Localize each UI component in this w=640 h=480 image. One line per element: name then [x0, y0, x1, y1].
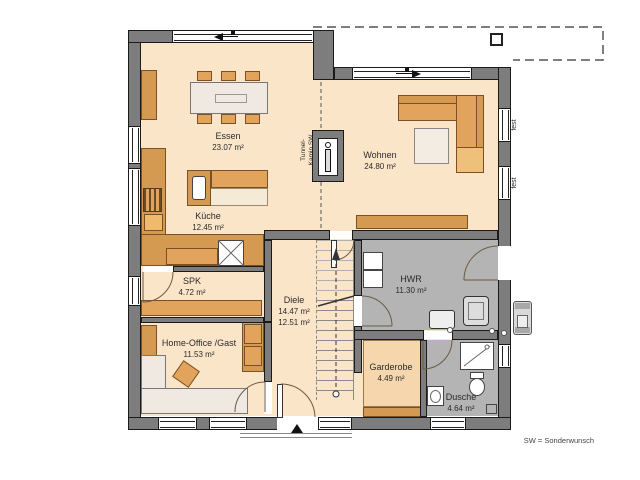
wall — [128, 30, 141, 430]
dining-table-inlay — [215, 94, 247, 103]
slide-arrow-right-icon — [412, 70, 421, 78]
floor-drain — [486, 404, 497, 414]
wardrobe-cabinet — [141, 325, 157, 357]
room-name: HWR — [396, 274, 427, 285]
room-label-wohnen: Wohnen 24.80 m² — [363, 150, 396, 172]
floor-plan: Essen 23.07 m² Wohnen 24.80 m² Küche 12.… — [0, 0, 640, 480]
window-dusche-bottom — [430, 417, 466, 430]
dining-chair — [197, 71, 212, 81]
legend: SW = Sonderwunsch — [502, 436, 594, 445]
entrance-door-leaf — [277, 384, 283, 418]
room-label-spk: SPK 4.72 m² — [178, 276, 205, 298]
coffee-table — [414, 128, 449, 164]
service-point — [489, 328, 495, 334]
room-name: SPK — [178, 276, 205, 287]
room-name: Wohnen — [363, 150, 396, 161]
pantry-shelf — [141, 300, 262, 316]
room-area: 4.64 m² — [446, 403, 477, 414]
window-essen-left — [128, 126, 141, 164]
slide-arrow-left-icon — [214, 33, 223, 41]
entrance-step — [240, 433, 352, 438]
daybed-cushion — [244, 346, 262, 366]
storage-shelf — [363, 252, 383, 270]
tall-cabinet-essen — [141, 70, 157, 120]
window-fest-bottom — [498, 166, 511, 200]
room-area: 12.51 m² — [278, 317, 310, 328]
window-homeoffice-bottom — [209, 417, 247, 430]
room-name: Home-Office /Gast — [162, 338, 236, 349]
room-area: 11.53 m² — [162, 349, 236, 360]
door-opening-homeoffice — [264, 382, 272, 414]
stairs-lower-flight — [316, 300, 354, 400]
desk — [141, 388, 248, 414]
room-label-essen: Essen 23.07 m² — [212, 131, 244, 153]
dishwasher — [218, 240, 244, 266]
room-label-kueche: Küche 12.45 m² — [192, 211, 224, 233]
room-label-diele: Diele 14.47 m² 12.51 m² — [278, 295, 310, 328]
kitchen-island-counter — [211, 170, 268, 188]
stove — [143, 188, 162, 212]
sofa-corner-cushion — [456, 147, 484, 173]
fixed-window-label: fest — [511, 110, 521, 140]
heater-unit-panel — [468, 302, 484, 320]
outdoor-unit-cap — [515, 303, 530, 309]
room-area: 14.47 m² — [278, 306, 310, 317]
fireplace-label: Tunnel- Kamin SW — [300, 117, 316, 183]
dining-chair — [245, 71, 260, 81]
washbasin-bowl — [430, 390, 441, 403]
fixed-window-label: fest — [511, 168, 521, 198]
wall — [354, 330, 424, 340]
dining-chair — [245, 114, 260, 124]
window-homeoffice-bottom — [158, 417, 197, 430]
door-opening-diele-wohnen — [330, 231, 352, 239]
room-area: 4.72 m² — [178, 287, 205, 298]
washing-machine — [429, 310, 455, 329]
garderobe-bench — [363, 407, 421, 417]
room-label-dusche: Dusche 4.64 m² — [446, 392, 477, 414]
room-area: 12.45 m² — [192, 222, 224, 233]
door-opening-hwr-exterior — [498, 246, 511, 280]
fireplace-flue — [325, 142, 331, 148]
room-name: Dusche — [446, 392, 477, 403]
dining-chair — [221, 71, 236, 81]
slide-arrow-dot — [405, 68, 409, 72]
roof-overhang-outline — [313, 27, 603, 60]
wall — [354, 240, 362, 296]
room-area: 11.30 m² — [396, 285, 427, 296]
door-opening-spk — [143, 266, 173, 272]
fireplace-label-line1: Tunnel- — [300, 117, 308, 183]
room-name: Küche — [192, 211, 224, 222]
service-point — [447, 327, 453, 333]
slide-arrow-line — [396, 73, 412, 74]
wall — [141, 317, 264, 323]
dining-chair — [197, 114, 212, 124]
room-label-hwr: HWR 11.30 m² — [396, 274, 427, 296]
room-name: Diele — [278, 295, 310, 306]
kitchen-sink — [192, 176, 206, 200]
door-opening-hwr — [354, 296, 362, 326]
wall — [173, 266, 264, 272]
fireplace-label-line2: Kamin SW — [308, 117, 316, 183]
kitchen-appliance — [144, 214, 163, 231]
kitchen-cabinet — [166, 248, 218, 265]
wall — [420, 340, 427, 417]
entrance-sidelight — [318, 417, 352, 430]
fireplace-insert — [325, 149, 331, 172]
wall — [264, 230, 330, 240]
window-spk-left — [128, 276, 141, 306]
slide-arrow-dot — [231, 31, 235, 35]
window-kueche-left — [128, 168, 141, 226]
window-fest-top — [498, 108, 511, 142]
sideboard — [356, 215, 468, 229]
wall — [264, 240, 272, 322]
room-area: 23.07 m² — [212, 142, 244, 153]
window-essen-top — [172, 30, 314, 43]
room-name: Garderobe — [369, 362, 412, 373]
room-area: 4.49 m² — [369, 373, 412, 384]
wall — [352, 230, 498, 240]
entrance-marker — [291, 424, 303, 433]
window-dusche-right — [498, 344, 511, 368]
slide-arrow-line — [222, 36, 238, 37]
downspout-symbol — [490, 33, 503, 46]
wall — [264, 322, 272, 382]
shower — [460, 342, 494, 370]
room-name: Essen — [212, 131, 244, 142]
storage-shelf — [363, 270, 383, 288]
room-label-garderobe: Garderobe 4.49 m² — [369, 362, 412, 384]
daybed-cushion — [244, 324, 262, 344]
door-leaf — [331, 240, 337, 268]
dining-chair — [221, 114, 236, 124]
wall — [313, 30, 334, 80]
sofa-backrest — [398, 95, 462, 104]
room-area: 24.80 m² — [363, 161, 396, 172]
room-label-homeoffice: Home-Office /Gast 11.53 m² — [162, 338, 236, 360]
outdoor-unit-panel — [517, 315, 528, 328]
service-point — [501, 330, 507, 336]
